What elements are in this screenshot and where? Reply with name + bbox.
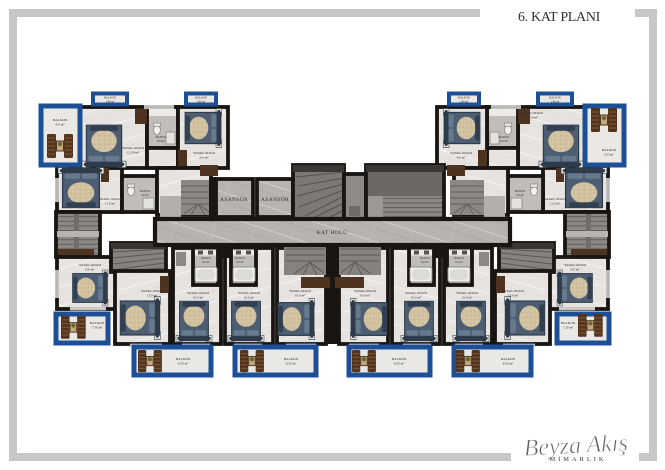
svg-text:1.80 m²: 1.80 m² xyxy=(551,101,560,104)
svg-text:6.0 m²: 6.0 m² xyxy=(157,139,165,143)
svg-text:BALKON: BALKON xyxy=(458,97,470,100)
svg-text:1.80 m²: 1.80 m² xyxy=(106,101,115,104)
svg-text:ASANSÖR: ASANSÖR xyxy=(220,196,248,203)
svg-text:8.50 m²: 8.50 m² xyxy=(286,362,296,366)
svg-text:6.0 m²: 6.0 m² xyxy=(421,261,428,264)
svg-text:7.50 m²: 7.50 m² xyxy=(563,326,573,330)
svg-text:KAT HOLÜ: KAT HOLÜ xyxy=(317,229,348,236)
svg-text:10.0 m²: 10.0 m² xyxy=(295,294,305,298)
svg-text:4.0 m²: 4.0 m² xyxy=(516,193,524,197)
svg-text:11.0 m²: 11.0 m² xyxy=(550,202,560,206)
svg-text:8.50 m²: 8.50 m² xyxy=(394,362,404,366)
svg-text:12.50 m²: 12.50 m² xyxy=(127,151,139,155)
svg-text:YATAK ODASI: YATAK ODASI xyxy=(122,146,145,150)
svg-text:BANYO: BANYO xyxy=(201,257,211,260)
svg-text:BANYO: BANYO xyxy=(235,257,245,260)
svg-text:12.50 m²: 12.50 m² xyxy=(526,116,538,120)
svg-text:13.0 m²: 13.0 m² xyxy=(147,294,157,298)
svg-text:1.80 m²: 1.80 m² xyxy=(197,101,206,104)
svg-text:10.0 m²: 10.0 m² xyxy=(411,296,421,300)
svg-text:10.0 m²: 10.0 m² xyxy=(244,296,254,300)
svg-text:YATAK ODASI: YATAK ODASI xyxy=(502,289,525,293)
svg-text:BALKON: BALKON xyxy=(104,97,116,100)
svg-text:6.0 m²: 6.0 m² xyxy=(202,261,209,264)
svg-text:YATAK ODASI: YATAK ODASI xyxy=(456,291,479,295)
svg-text:1.80 m²: 1.80 m² xyxy=(460,101,469,104)
svg-text:BALKON: BALKON xyxy=(501,357,516,361)
svg-text:4.0 m²: 4.0 m² xyxy=(141,193,149,197)
svg-text:YATAK ODASI: YATAK ODASI xyxy=(187,291,210,295)
svg-text:9.0 m²: 9.0 m² xyxy=(200,156,209,160)
svg-text:YATAK ODASI: YATAK ODASI xyxy=(354,289,377,293)
svg-text:BALKON: BALKON xyxy=(284,357,299,361)
svg-text:9.0 m²: 9.0 m² xyxy=(457,156,466,160)
svg-text:YATAK ODASI: YATAK ODASI xyxy=(405,291,428,295)
svg-text:YATAK ODASI: YATAK ODASI xyxy=(141,289,164,293)
svg-text:BALKON: BALKON xyxy=(549,97,561,100)
svg-text:10.0 m²: 10.0 m² xyxy=(193,296,203,300)
svg-text:YATAK ODASI: YATAK ODASI xyxy=(79,263,102,267)
svg-text:BANYO: BANYO xyxy=(454,257,464,260)
svg-text:BANYO: BANYO xyxy=(420,257,430,260)
svg-text:BALKON: BALKON xyxy=(602,148,617,152)
svg-text:YATAK ODASI: YATAK ODASI xyxy=(238,291,261,295)
svg-text:10.0 m²: 10.0 m² xyxy=(360,294,370,298)
svg-text:BALKON: BALKON xyxy=(392,357,407,361)
svg-text:6.0 m²: 6.0 m² xyxy=(455,261,462,264)
svg-text:11.0 m²: 11.0 m² xyxy=(105,202,115,206)
svg-text:9.0 m²: 9.0 m² xyxy=(56,123,65,127)
svg-text:YATAK ODASI: YATAK ODASI xyxy=(289,289,312,293)
svg-text:BALKON: BALKON xyxy=(195,97,207,100)
svg-text:6. KAT PLANI: 6. KAT PLANI xyxy=(518,10,601,25)
svg-text:YATAK ODASI: YATAK ODASI xyxy=(450,151,473,155)
svg-text:6.50 m²: 6.50 m² xyxy=(178,362,188,366)
svg-text:YATAK ODASI: YATAK ODASI xyxy=(193,151,216,155)
svg-text:YATAK ODASI: YATAK ODASI xyxy=(99,197,122,201)
svg-text:YATAK ODASI: YATAK ODASI xyxy=(544,197,567,201)
svg-text:9.0 m²: 9.0 m² xyxy=(571,268,580,272)
svg-text:8.50 m²: 8.50 m² xyxy=(503,362,513,366)
svg-text:BALKON: BALKON xyxy=(53,118,68,122)
svg-text:7.50 m²: 7.50 m² xyxy=(92,326,102,330)
svg-text:YATAK ODASI: YATAK ODASI xyxy=(564,263,587,267)
svg-text:YATAK ODASI: YATAK ODASI xyxy=(521,111,544,115)
svg-text:BALKON: BALKON xyxy=(176,357,191,361)
svg-text:6.0 m²: 6.0 m² xyxy=(500,139,508,143)
svg-text:6.0 m²: 6.0 m² xyxy=(236,261,243,264)
svg-text:ASANSÖR: ASANSÖR xyxy=(261,196,289,203)
svg-text:13.0 m²: 13.0 m² xyxy=(508,294,518,298)
svg-text:MİMARLIK: MİMARLIK xyxy=(549,456,606,463)
svg-text:10.0 m²: 10.0 m² xyxy=(462,296,472,300)
svg-text:9.0 m²: 9.0 m² xyxy=(605,153,614,157)
svg-text:9.0 m²: 9.0 m² xyxy=(86,268,95,272)
svg-text:BALKON: BALKON xyxy=(90,321,105,325)
svg-text:BALKON: BALKON xyxy=(561,321,576,325)
